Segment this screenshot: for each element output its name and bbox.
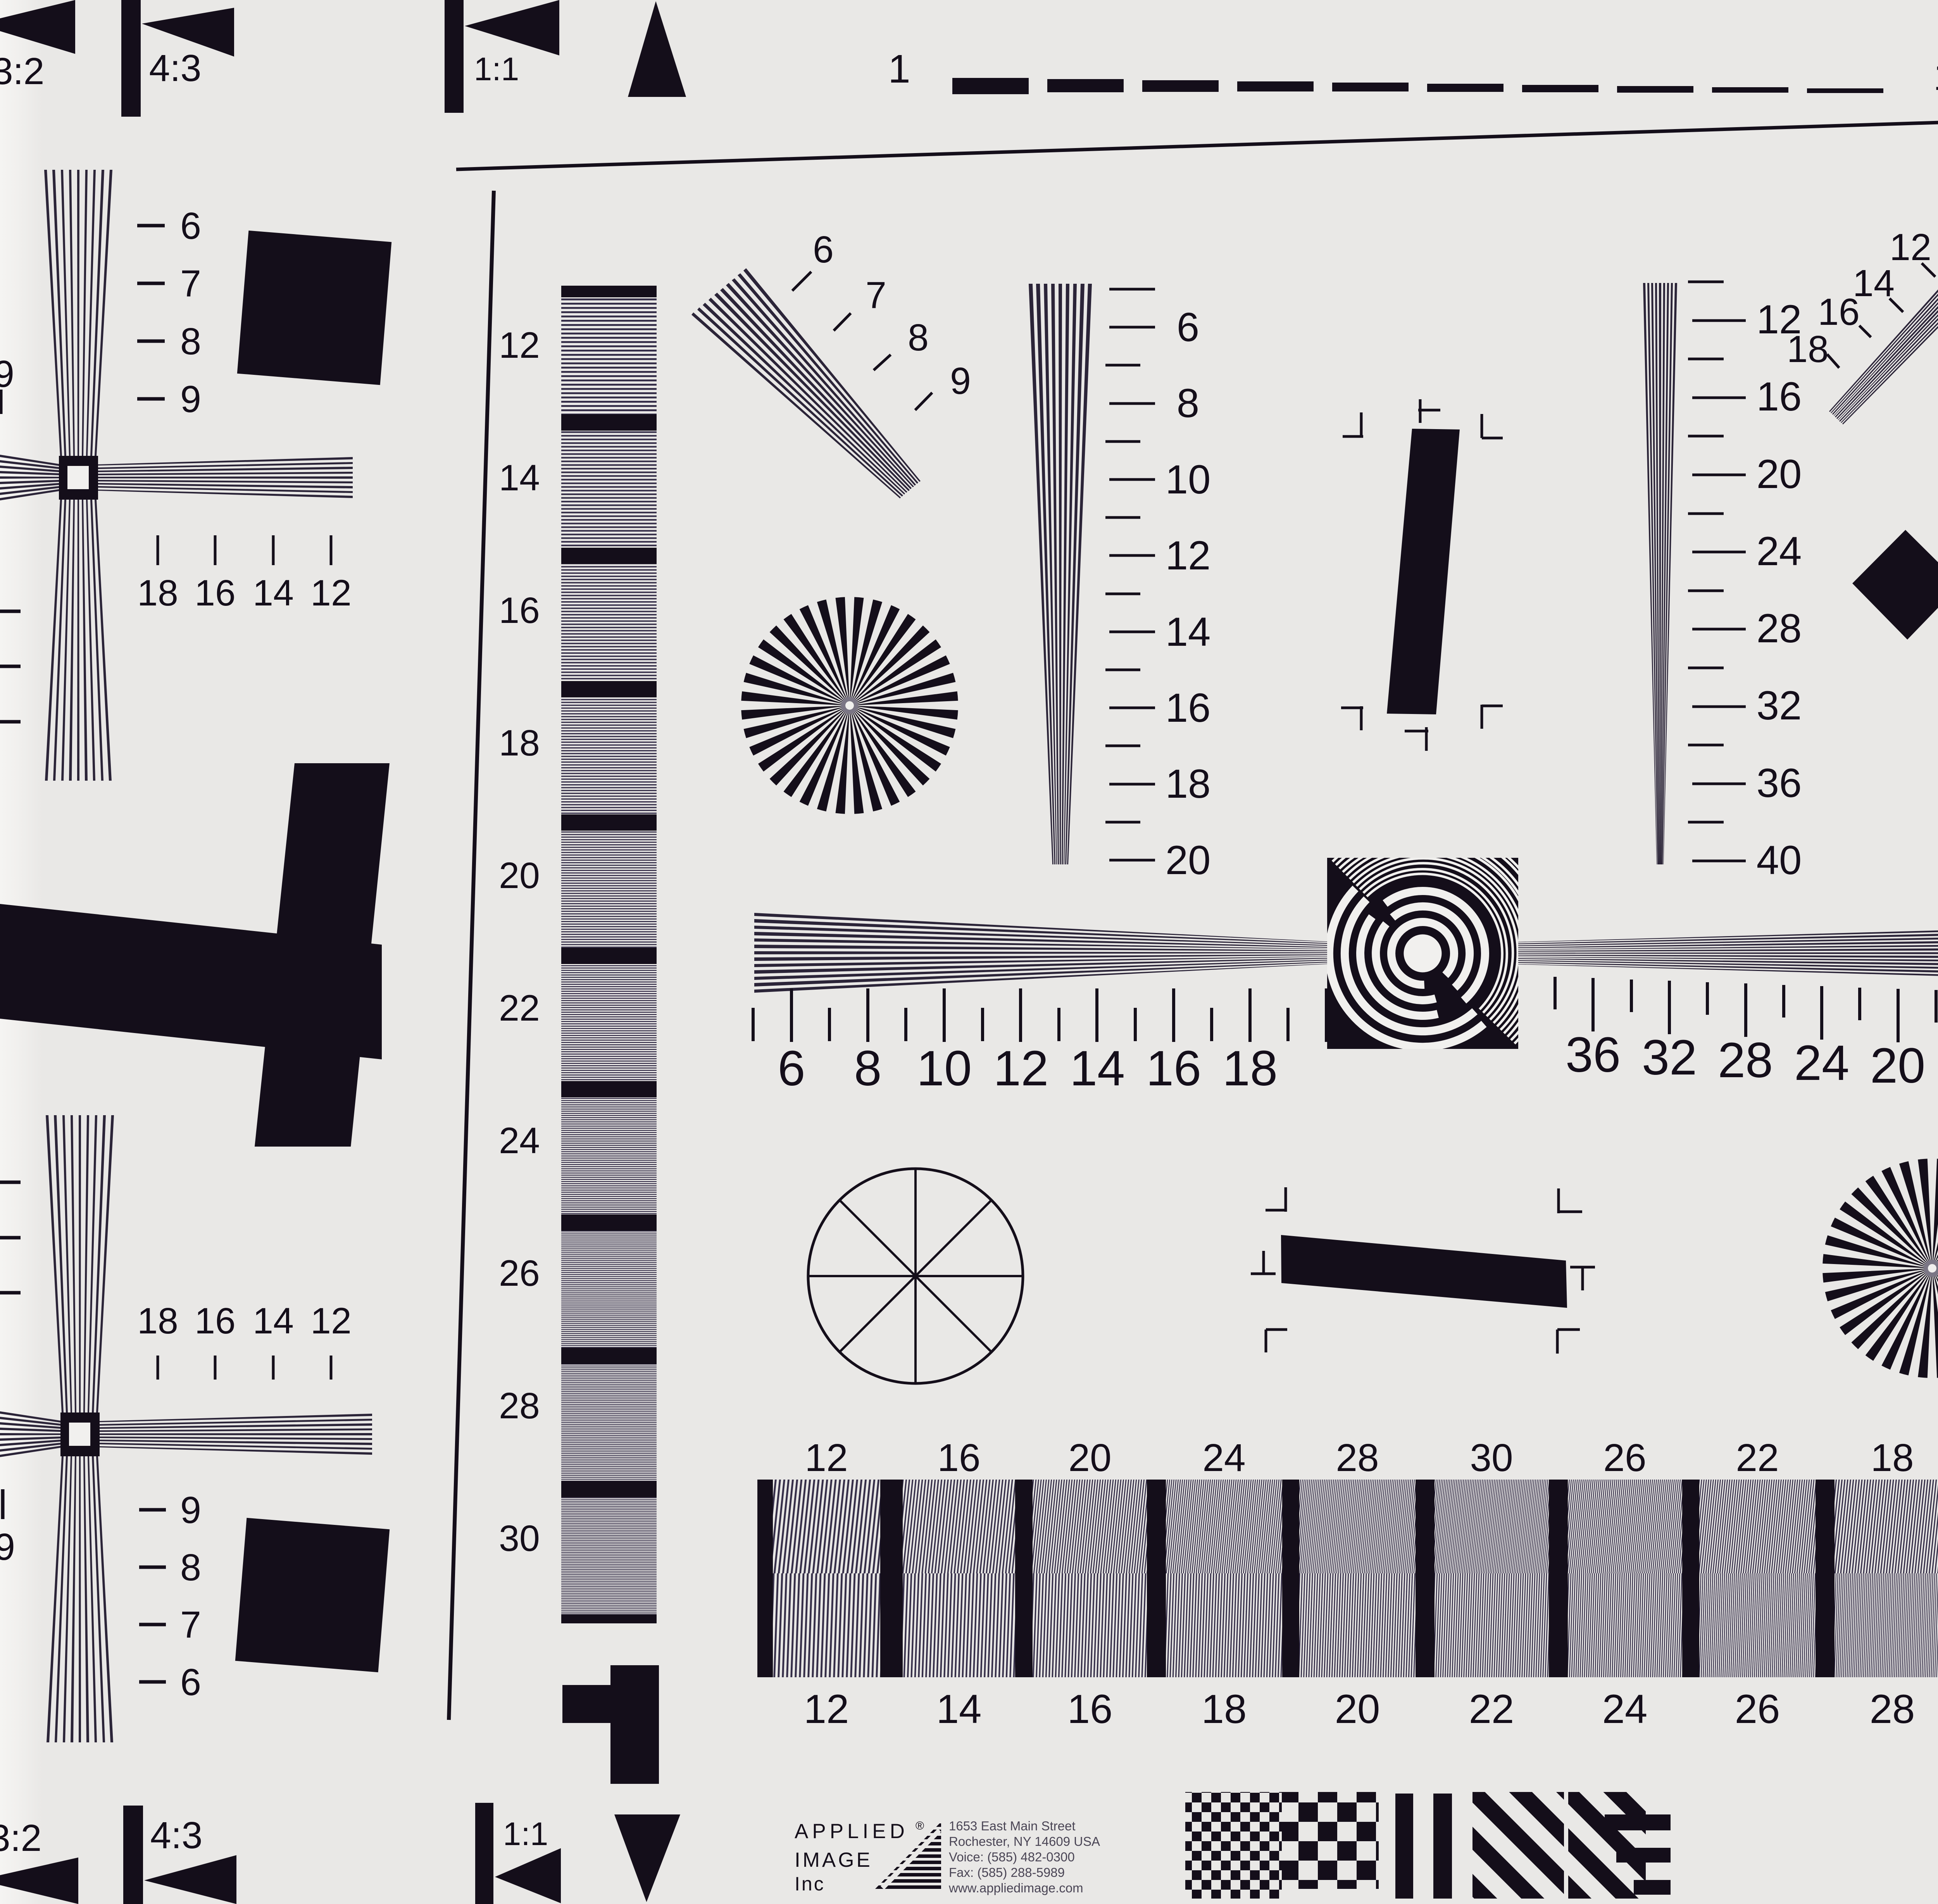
svg-text:16: 16 (195, 1300, 236, 1342)
svg-text:26: 26 (1735, 1687, 1780, 1732)
svg-text:24: 24 (1602, 1687, 1648, 1732)
svg-text:30: 30 (499, 1518, 540, 1559)
svg-text:18: 18 (1202, 1687, 1247, 1732)
svg-text:20: 20 (1068, 1436, 1111, 1480)
svg-text:28: 28 (1757, 606, 1802, 651)
svg-text:9: 9 (180, 378, 201, 420)
svg-text:10: 10 (917, 1041, 972, 1096)
svg-text:22: 22 (1736, 1436, 1779, 1480)
svg-text:8: 8 (180, 1546, 201, 1588)
svg-text:7: 7 (866, 274, 886, 316)
svg-text:16: 16 (1067, 1687, 1113, 1732)
svg-text:12: 12 (805, 1436, 848, 1480)
svg-text:20: 20 (1166, 838, 1211, 883)
svg-text:Inc: Inc (795, 1873, 825, 1895)
svg-text:1:1: 1:1 (474, 51, 519, 87)
svg-text:24: 24 (1794, 1035, 1849, 1091)
svg-text:24: 24 (499, 1120, 540, 1161)
svg-text:20: 20 (1757, 452, 1802, 497)
svg-text:6: 6 (813, 228, 834, 271)
svg-text:14: 14 (253, 573, 294, 614)
svg-text:26: 26 (499, 1253, 540, 1294)
svg-text:7: 7 (180, 1604, 201, 1646)
svg-text:22: 22 (1469, 1687, 1514, 1732)
svg-text:16: 16 (195, 573, 236, 614)
svg-text:14: 14 (936, 1687, 982, 1732)
svg-text:18: 18 (499, 723, 540, 764)
svg-text:3:2: 3:2 (0, 50, 44, 92)
svg-text:8: 8 (854, 1041, 881, 1096)
svg-text:12: 12 (310, 1300, 352, 1342)
svg-text:16: 16 (499, 590, 540, 631)
svg-text:Fax: (585) 288-5989: Fax: (585) 288-5989 (949, 1865, 1065, 1880)
svg-text:14: 14 (253, 1300, 294, 1342)
svg-text:18: 18 (1787, 328, 1829, 370)
svg-text:12: 12 (499, 325, 540, 366)
svg-text:36: 36 (1757, 761, 1802, 806)
svg-text:4:3: 4:3 (149, 47, 202, 89)
svg-text:Voice: (585) 482-0300: Voice: (585) 482-0300 (949, 1850, 1075, 1864)
svg-text:14: 14 (499, 457, 540, 498)
svg-text:16: 16 (1757, 374, 1802, 419)
svg-text:6: 6 (180, 1661, 201, 1703)
svg-text:6: 6 (180, 205, 201, 247)
svg-text:36: 36 (1566, 1027, 1621, 1083)
svg-text:6: 6 (778, 1041, 805, 1096)
svg-text:30: 30 (1470, 1436, 1513, 1480)
svg-text:16: 16 (1146, 1041, 1201, 1096)
svg-text:1653 East Main Street: 1653 East Main Street (949, 1819, 1076, 1833)
svg-text:8: 8 (180, 320, 201, 362)
svg-text:1: 1 (888, 47, 910, 91)
svg-text:12: 12 (310, 573, 352, 614)
svg-text:22: 22 (499, 988, 540, 1029)
svg-text:1:1: 1:1 (503, 1816, 548, 1852)
svg-text:20: 20 (499, 855, 540, 896)
svg-text:28: 28 (1336, 1436, 1379, 1480)
svg-text:6: 6 (1177, 305, 1199, 350)
svg-text:12: 12 (1890, 226, 1931, 268)
svg-text:26: 26 (1603, 1436, 1646, 1480)
svg-text:18: 18 (1871, 1436, 1914, 1480)
svg-text:40: 40 (1757, 838, 1802, 883)
svg-text:18: 18 (1222, 1041, 1278, 1096)
svg-text:18: 18 (137, 1300, 178, 1342)
svg-text:10: 10 (1933, 54, 1938, 98)
svg-text:32: 32 (1642, 1030, 1697, 1085)
svg-text:8: 8 (1177, 381, 1199, 426)
svg-text:16: 16 (1166, 685, 1211, 731)
svg-text:4:3: 4:3 (150, 1814, 203, 1856)
svg-text:10: 10 (1166, 457, 1211, 502)
svg-text:14: 14 (1166, 609, 1211, 655)
svg-text:12: 12 (804, 1687, 849, 1732)
svg-text:9: 9 (0, 353, 14, 395)
svg-text:18: 18 (137, 573, 178, 614)
svg-text:32: 32 (1757, 683, 1802, 728)
svg-text:9: 9 (950, 360, 971, 402)
svg-text:18: 18 (1166, 761, 1211, 807)
svg-text:IMAGE: IMAGE (795, 1849, 872, 1871)
svg-text:7: 7 (180, 262, 201, 305)
svg-text:9: 9 (180, 1489, 201, 1531)
svg-text:8: 8 (908, 316, 929, 359)
svg-text:12: 12 (1166, 533, 1211, 578)
svg-text:16: 16 (937, 1436, 980, 1480)
svg-text:20: 20 (1870, 1038, 1925, 1093)
svg-text:24: 24 (1202, 1436, 1245, 1480)
svg-text:9: 9 (0, 1526, 15, 1568)
svg-text:28: 28 (1718, 1033, 1773, 1088)
svg-text:®: ® (916, 1819, 924, 1832)
svg-text:3:2: 3:2 (0, 1817, 41, 1859)
svg-text:12: 12 (993, 1041, 1048, 1096)
svg-text:APPLIED: APPLIED (795, 1820, 909, 1843)
svg-text:28: 28 (499, 1385, 540, 1426)
svg-text:14: 14 (1070, 1041, 1125, 1096)
svg-text:Rochester, NY 14609 USA: Rochester, NY 14609 USA (949, 1834, 1100, 1849)
svg-text:28: 28 (1870, 1687, 1915, 1732)
svg-text:24: 24 (1757, 529, 1802, 574)
svg-text:www.appliedimage.com: www.appliedimage.com (948, 1881, 1083, 1895)
svg-text:16: 16 (1818, 291, 1860, 333)
svg-text:20: 20 (1335, 1687, 1380, 1732)
